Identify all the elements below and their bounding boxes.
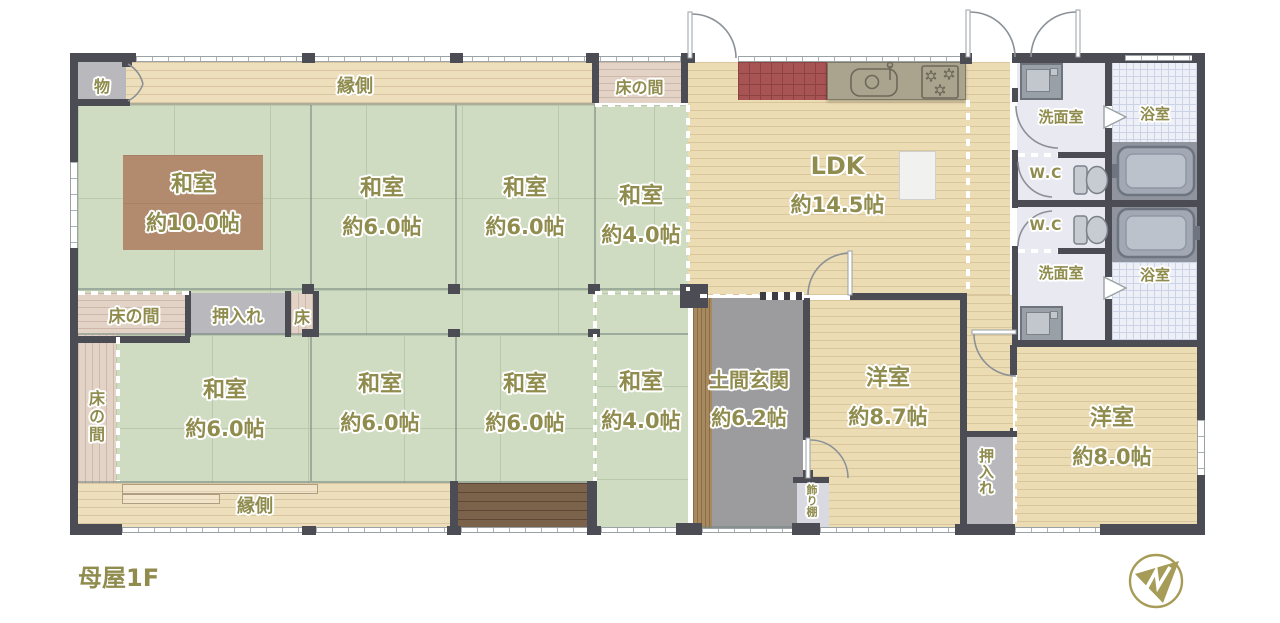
window-bottom (122, 527, 306, 533)
window-bottom (1015, 527, 1100, 533)
window-left (70, 162, 78, 248)
kitchen-tile-area (738, 62, 827, 100)
room-label-doma-genkan: 土間玄関 約6.2帖 (691, 364, 807, 431)
label-oshiire-mid: 押入れ (192, 302, 283, 327)
floor-title: 母屋1F (78, 558, 159, 593)
wall-pillar (450, 53, 463, 63)
wall-bath-left (1105, 62, 1112, 106)
room-area: 約10.0帖 (118, 207, 268, 237)
room-name: 土間玄関 (691, 364, 807, 393)
label-senmen-top: 洗面室 (1017, 106, 1105, 127)
wall-pillar (448, 284, 460, 294)
window-bath-top (1125, 55, 1192, 61)
wall-bottom (1100, 524, 1205, 535)
wall-deck-side (450, 481, 458, 528)
wall-deck-side (587, 481, 597, 528)
label-storage: 物 (80, 73, 124, 97)
label-tokonoma-small: 床 (290, 304, 314, 328)
room-name: 洋室 (812, 360, 964, 392)
label-tokonoma-mid: 床の間 (84, 302, 184, 327)
wall-bath-left (1105, 299, 1112, 345)
room-label-washitsu10: 和室 約10.0帖 (118, 166, 268, 237)
washing-machine-icon (1020, 63, 1063, 100)
tub-bottom-area (1112, 204, 1198, 262)
room-name: 和室 (595, 178, 687, 210)
wall-pillar (960, 53, 972, 64)
wall-tokonoma-mid-bottom (74, 336, 190, 343)
wall-washroom-left (1012, 246, 1018, 345)
genkan-sliding-door (702, 528, 792, 533)
room-name: 和室 (455, 366, 595, 398)
room-area: 約6.2帖 (691, 402, 807, 431)
fusuma-door (1013, 375, 1017, 431)
room-label-washitsu6c: 和室 約6.0帖 (150, 372, 300, 443)
wc-partition-door (1018, 153, 1058, 157)
window-bottom (820, 527, 955, 533)
room-label-washitsu6e: 和室 約6.0帖 (455, 366, 595, 437)
window-kitchen (738, 56, 965, 62)
washing-machine-knob (1050, 311, 1058, 319)
room-name: 洋室 (1032, 400, 1192, 432)
washing-machine-door (1026, 312, 1050, 335)
floorplan-canvas: 和室 約10.0帖 和室 約6.0帖 和室 約6.0帖 和室 約4.0帖 LDK… (0, 0, 1280, 623)
room-area: 約6.0帖 (455, 407, 595, 437)
label-oshiire-right: 押入れ (976, 448, 997, 526)
dark-wood-deck (455, 483, 595, 528)
room-area: 約4.0帖 (595, 219, 687, 249)
oshiire-front-door (1013, 437, 1017, 528)
window-right (1197, 420, 1205, 475)
wall-pillar (448, 329, 460, 337)
room-area: 約14.5帖 (740, 189, 935, 219)
room-area: 約6.0帖 (310, 407, 450, 437)
fusuma-door (595, 291, 685, 295)
wall-wc-divider (1058, 248, 1112, 254)
label-bath-bottom: 浴室 (1112, 264, 1198, 285)
wall-bottom (70, 524, 122, 535)
kitchen-counter (827, 62, 966, 100)
window-bottom (601, 527, 676, 533)
wall-tokonoma-side (681, 62, 688, 103)
room-label-youshitsu87: 洋室 約8.7帖 (812, 360, 964, 431)
tub-top-area (1112, 142, 1198, 202)
wall-pillar (122, 55, 132, 67)
room-area: 約6.0帖 (455, 211, 595, 241)
label-tokonoma-left: 床の間 (83, 352, 107, 482)
wall-pillar (302, 329, 314, 337)
wall-ldk-youshitsu (850, 293, 967, 300)
fusuma-door (116, 337, 120, 481)
brand-logo-icon (1130, 555, 1182, 607)
washing-machine-icon (1020, 306, 1063, 343)
room-label-youshitsu80: 洋室 約8.0帖 (1032, 400, 1192, 471)
fusuma-door (966, 100, 970, 293)
room-area: 約4.0帖 (595, 405, 687, 435)
room-area: 約8.7帖 (812, 401, 964, 431)
fusuma-door (78, 291, 190, 295)
wall-pillar (1010, 345, 1017, 375)
wall-wc-divider (1058, 152, 1112, 158)
room-name: 和室 (595, 364, 687, 396)
wall-oshiire-side (185, 291, 191, 337)
room-name: 和室 (312, 170, 452, 202)
room-name: LDK (740, 152, 935, 180)
room-label-ldk: LDK 約14.5帖 (740, 152, 935, 219)
wall-left (70, 55, 78, 535)
label-wc-top: W.C (1021, 166, 1071, 182)
washing-machine-knob (1050, 68, 1058, 76)
room-label-washitsu6a: 和室 約6.0帖 (312, 170, 452, 241)
wall-oshiire-right-top (960, 431, 1017, 437)
open-threshold (760, 292, 804, 300)
partition-line (78, 481, 595, 483)
wall-kazaridana (793, 477, 829, 483)
room-name: 和室 (150, 372, 300, 404)
label-wc-bottom: W.C (1021, 218, 1071, 234)
wall-bath-left (1105, 128, 1112, 277)
wall-storage (74, 99, 130, 106)
label-bath-top: 浴室 (1112, 103, 1198, 124)
partition-line (78, 103, 598, 105)
room-area: 約8.0帖 (1032, 441, 1192, 471)
label-kazaridana: 飾り棚 (803, 484, 819, 528)
corridor-floor (967, 295, 1013, 440)
room-name: 和室 (118, 166, 268, 198)
window-bottom (316, 527, 450, 533)
wc-partition-door (1018, 249, 1058, 253)
window-top (136, 56, 688, 62)
window-bottom (461, 527, 587, 533)
room-label-washitsu4b: 和室 約4.0帖 (595, 364, 687, 435)
room-label-washitsu6b: 和室 約6.0帖 (455, 170, 595, 241)
wall-pillar (302, 526, 316, 535)
washing-machine-door (1026, 69, 1050, 92)
room-name: 和室 (455, 170, 595, 202)
bath-top-floor (1112, 62, 1198, 142)
room-name: 和室 (310, 366, 450, 398)
wall-pillar (1012, 88, 1018, 102)
label-senmen-bottom: 洗面室 (1017, 262, 1105, 283)
label-engawa-bottom: 縁側 (200, 492, 310, 518)
room-area: 約6.0帖 (312, 211, 452, 241)
room-label-washitsu4a: 和室 約4.0帖 (595, 178, 687, 249)
wall-pillar (302, 53, 315, 63)
label-tokonoma-top: 床の間 (598, 74, 681, 98)
wall-pillar-genkan (676, 523, 702, 535)
label-engawa-top: 縁側 (300, 72, 410, 98)
room-area: 約6.0帖 (150, 413, 300, 443)
fusuma-door (700, 294, 760, 298)
room-label-washitsu6d: 和室 約6.0帖 (310, 366, 450, 437)
wall-washblock-bottom (1012, 340, 1205, 347)
fusuma-door (595, 103, 685, 107)
